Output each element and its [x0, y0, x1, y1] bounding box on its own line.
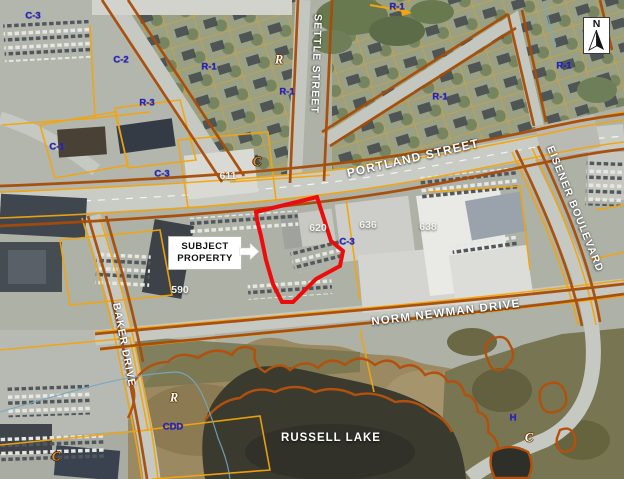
civic-number-636: 636 [359, 219, 377, 231]
civic-number-638: 638 [419, 221, 437, 233]
zone-label-c3: C-3 [154, 169, 169, 180]
north-label: N [593, 18, 601, 30]
callout-line-1: SUBJECT [181, 241, 228, 253]
civic-number-620: 620 [309, 222, 327, 234]
callout-line-2: PROPERTY [177, 253, 232, 265]
civic-number-590: 590 [171, 284, 189, 296]
zone-label-r1: R-1 [389, 2, 404, 13]
zone-label-r1: R-1 [201, 62, 216, 73]
aerial-zoning-map: PORTLAND STREET SETTLE STREET NORM NEWMA… [0, 0, 624, 479]
zone-label-c3: C-3 [339, 237, 354, 248]
zone-label-c3: C-3 [25, 11, 40, 22]
zone-label-c1: C-1 [49, 142, 64, 153]
compass-needle [588, 30, 605, 51]
zone-label-h: H [510, 413, 517, 424]
zone-label-r: R [275, 53, 283, 68]
lake-label: RUSSELL LAKE [281, 432, 381, 444]
zone-label-c2: C-2 [113, 55, 128, 66]
zone-label-r: R [170, 391, 178, 406]
callout-arrow-icon [239, 243, 261, 261]
north-arrow-icon: N [583, 17, 610, 54]
zone-label-c: C [525, 431, 533, 446]
subject-property-callout: SUBJECT PROPERTY [168, 236, 242, 270]
civic-number-611: 611 [220, 170, 237, 182]
zone-label-r3: R-3 [139, 98, 154, 109]
zone-label-cdd: CDD [163, 422, 184, 433]
zone-label-c: C [52, 450, 60, 465]
zone-label-r1: R-1 [279, 87, 294, 98]
zone-label-r1: R-1 [432, 92, 447, 103]
zone-label-c: C [253, 155, 261, 170]
zone-label-r1: R-1 [556, 61, 571, 72]
